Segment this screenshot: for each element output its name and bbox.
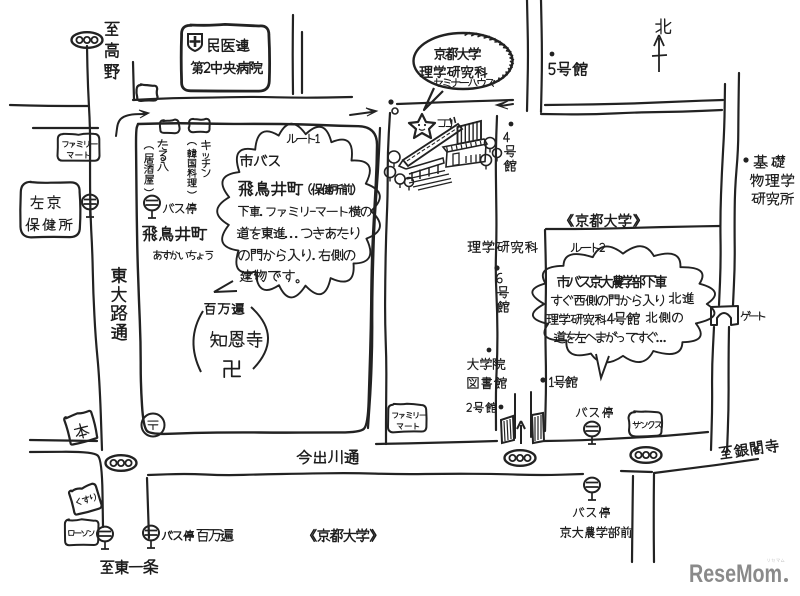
- svg-text:ReseMom: ReseMom: [689, 560, 782, 588]
